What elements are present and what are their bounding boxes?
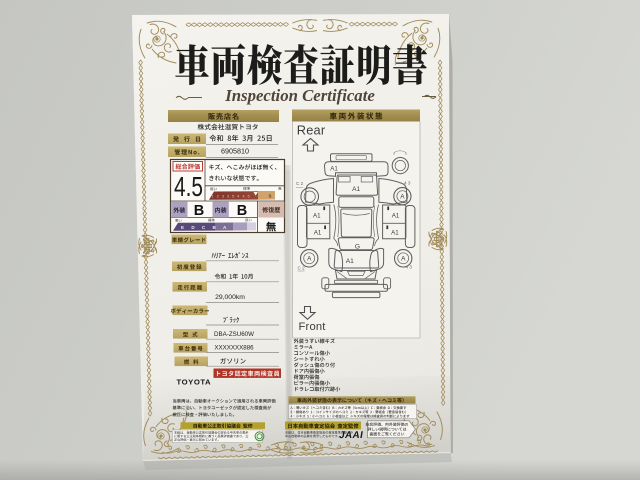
svg-text:G: G bbox=[355, 243, 360, 250]
svg-text:XXXXXXX886: XXXXXXX886 bbox=[214, 345, 254, 352]
svg-text:A: A bbox=[307, 256, 312, 263]
svg-text:S: S bbox=[269, 193, 272, 198]
svg-text:A1: A1 bbox=[313, 213, 321, 220]
svg-text:Front: Front bbox=[299, 321, 327, 333]
svg-text:Inspection Certificate: Inspection Certificate bbox=[224, 86, 375, 105]
svg-text:A1: A1 bbox=[346, 258, 354, 265]
svg-text:1 2 3 3.5 4 4.5: 1 2 3 3.5 4 4.5 bbox=[212, 193, 251, 198]
svg-text:4.5: 4.5 bbox=[174, 171, 203, 202]
svg-text:TOYOTA: TOYOTA bbox=[177, 378, 212, 387]
svg-text:A1: A1 bbox=[352, 186, 360, 193]
svg-text:4 3: 4 3 bbox=[406, 265, 413, 270]
svg-text:A: A bbox=[401, 256, 406, 263]
svg-text:JAAI: JAAI bbox=[338, 430, 364, 441]
svg-text:A: A bbox=[400, 194, 405, 201]
svg-text:6905810: 6905810 bbox=[221, 146, 249, 155]
svg-text:A1: A1 bbox=[314, 230, 322, 237]
svg-text:A1: A1 bbox=[330, 166, 338, 173]
svg-text:4 3: 4 3 bbox=[404, 181, 411, 186]
svg-text:29,000km: 29,000km bbox=[215, 294, 245, 301]
svg-text:B: B bbox=[237, 203, 247, 219]
svg-text:C 2: C 2 bbox=[298, 266, 306, 271]
svg-text:B: B bbox=[194, 203, 204, 219]
svg-text:A1: A1 bbox=[392, 213, 400, 220]
svg-text:E D C B A: E D C B A bbox=[181, 225, 229, 230]
svg-text:A1: A1 bbox=[391, 230, 399, 237]
svg-text:Rear: Rear bbox=[297, 122, 326, 137]
svg-text:C 2: C 2 bbox=[296, 181, 304, 186]
svg-text:DBA-ZSU60W: DBA-ZSU60W bbox=[214, 331, 254, 338]
